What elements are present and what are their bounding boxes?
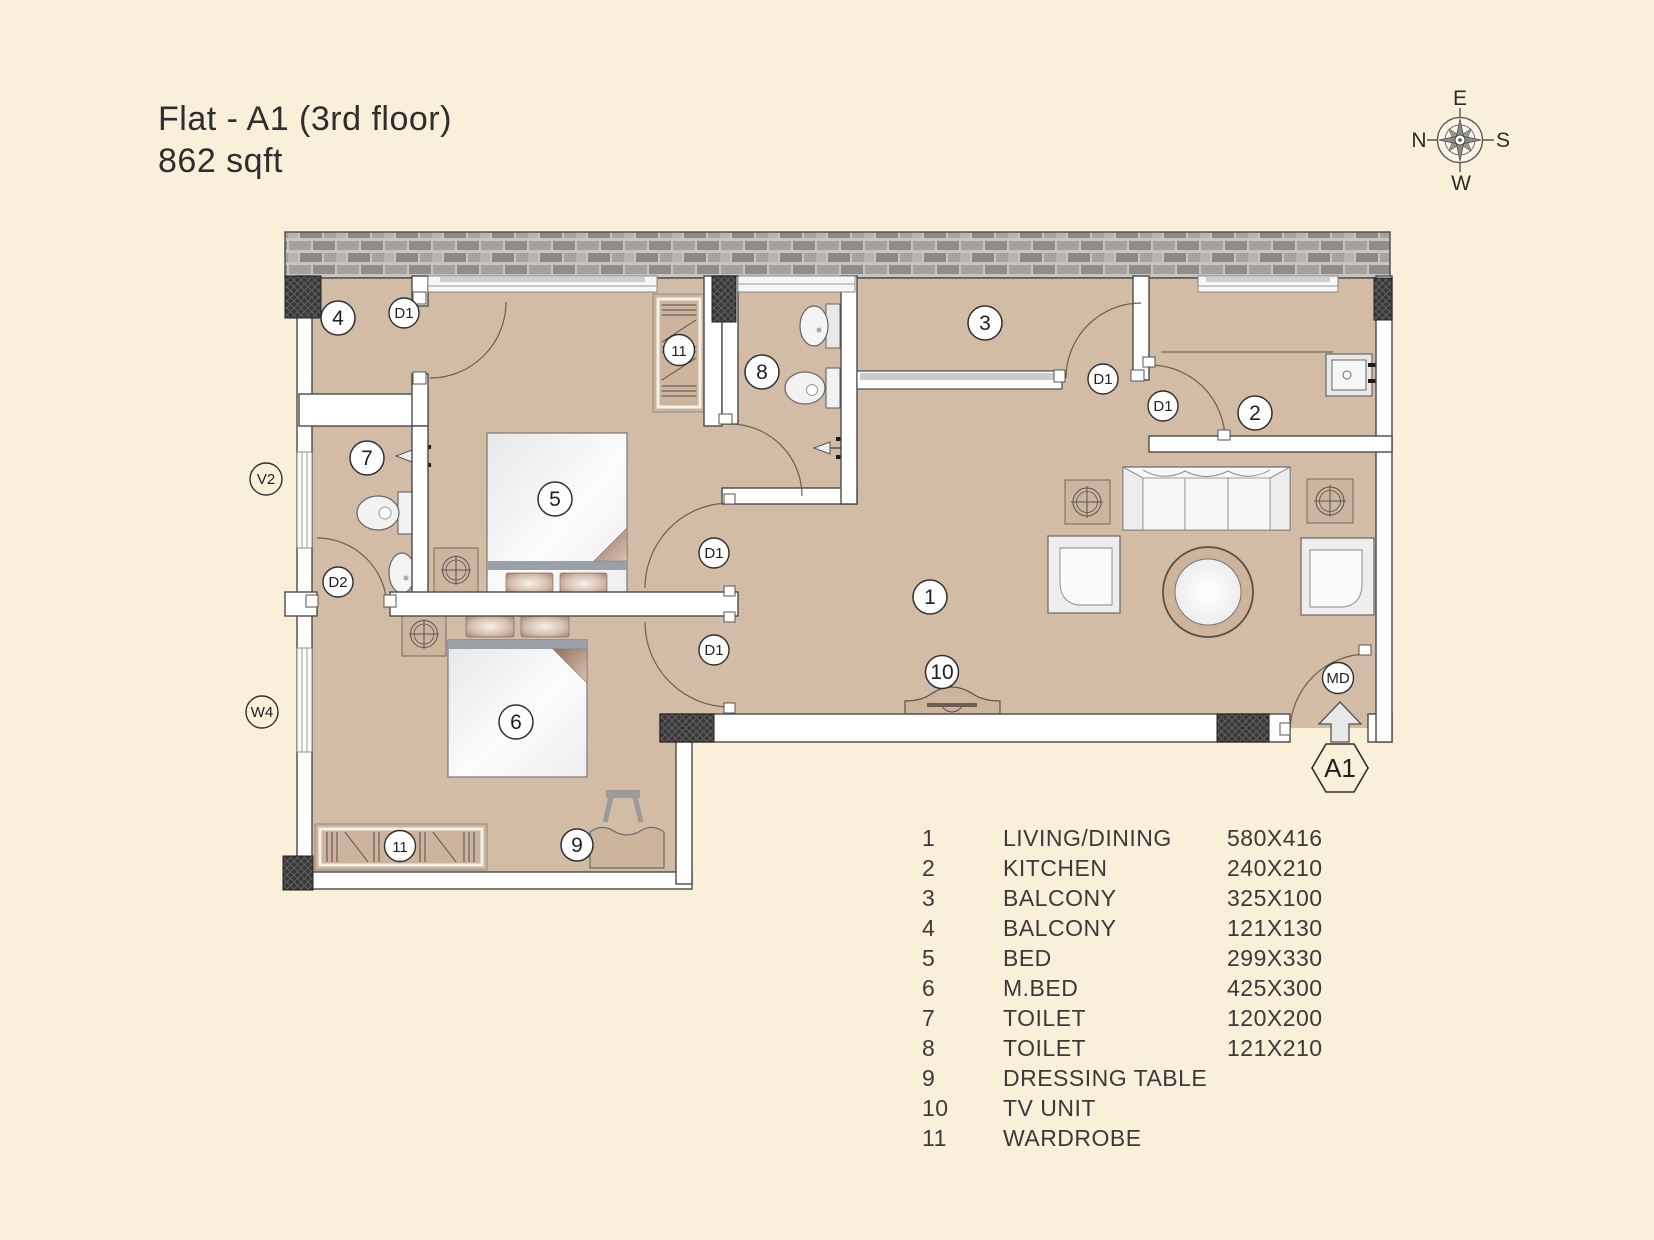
column bbox=[660, 714, 714, 742]
svg-text:V2: V2 bbox=[257, 471, 275, 488]
svg-text:TOILET: TOILET bbox=[1003, 1005, 1086, 1031]
legend-row: 3BALCONY325X100 bbox=[922, 885, 1323, 911]
room-label-wardrobe6: 11 bbox=[385, 831, 416, 862]
title-line1: Flat - A1 (3rd floor) bbox=[158, 100, 452, 138]
legend-row: 10TV UNIT bbox=[922, 1095, 1096, 1121]
svg-text:9: 9 bbox=[922, 1065, 935, 1091]
svg-text:8: 8 bbox=[922, 1035, 935, 1061]
window-w4 bbox=[297, 648, 312, 752]
svg-text:TV UNIT: TV UNIT bbox=[1003, 1095, 1096, 1121]
svg-text:WARDROBE: WARDROBE bbox=[1003, 1125, 1142, 1151]
legend-row: 8TOILET121X210 bbox=[922, 1035, 1323, 1061]
door-label-d1: D1 bbox=[1088, 364, 1118, 394]
door-label-d2: D2 bbox=[323, 567, 353, 597]
svg-text:D2: D2 bbox=[328, 574, 347, 591]
balcony4-toilet7-wall bbox=[299, 394, 426, 426]
room-label-mbed: 6 bbox=[499, 705, 533, 739]
room-label-wardrobe5: 11 bbox=[664, 335, 695, 366]
svg-text:3: 3 bbox=[922, 885, 935, 911]
svg-text:10: 10 bbox=[922, 1095, 949, 1121]
floorplan-canvas: Flat - A1 (3rd floor) 862 sqft E S W N bbox=[0, 0, 1654, 1240]
svg-text:299X330: 299X330 bbox=[1227, 945, 1323, 971]
unit-label: A1 bbox=[1324, 753, 1356, 783]
column bbox=[712, 276, 736, 322]
svg-text:1: 1 bbox=[922, 825, 935, 851]
svg-text:DRESSING TABLE: DRESSING TABLE bbox=[1003, 1065, 1207, 1091]
svg-text:D1: D1 bbox=[1153, 398, 1172, 415]
toilet8-east-wall bbox=[841, 276, 857, 504]
svg-text:BALCONY: BALCONY bbox=[1003, 915, 1116, 941]
room-label-balcony4: 4 bbox=[321, 301, 355, 335]
svg-text:8: 8 bbox=[756, 361, 768, 384]
bedside-table-plant-icon bbox=[434, 548, 478, 592]
mbed-east-wall bbox=[676, 726, 692, 884]
floorplan-page: Flat - A1 (3rd floor) 862 sqft E S W N bbox=[0, 0, 1654, 1240]
bed-mbed-divider-wall bbox=[390, 592, 738, 616]
svg-text:LIVING/DINING: LIVING/DINING bbox=[1003, 825, 1172, 851]
window-label-w4: W4 bbox=[246, 696, 278, 728]
svg-text:425X300: 425X300 bbox=[1227, 975, 1323, 1001]
left-exterior-wall bbox=[297, 276, 312, 884]
svg-text:580X416: 580X416 bbox=[1227, 825, 1323, 851]
window-v2 bbox=[297, 452, 312, 548]
window-bed5 bbox=[428, 276, 657, 292]
toilet7-east-wall bbox=[412, 426, 428, 608]
door-label-md: MD bbox=[1323, 663, 1354, 694]
svg-text:D1: D1 bbox=[704, 545, 723, 562]
svg-text:6: 6 bbox=[922, 975, 935, 1001]
compass-bottom-label: W bbox=[1451, 172, 1471, 195]
legend: 1LIVING/DINING580X416 2KITCHEN240X210 3B… bbox=[922, 825, 1323, 1151]
svg-text:W4: W4 bbox=[251, 704, 274, 721]
room-label-toilet7: 7 bbox=[350, 441, 384, 475]
compass-rose-icon: E S W N bbox=[1411, 87, 1510, 195]
washbasin-icon bbox=[389, 553, 415, 593]
sofa bbox=[1123, 467, 1290, 530]
svg-text:M.BED: M.BED bbox=[1003, 975, 1078, 1001]
column bbox=[283, 856, 313, 890]
side-table-plant-icon bbox=[1307, 479, 1353, 523]
svg-text:D1: D1 bbox=[1093, 371, 1112, 388]
svg-text:6: 6 bbox=[510, 711, 522, 734]
bottom-left-wall bbox=[285, 872, 692, 889]
svg-text:4: 4 bbox=[332, 307, 344, 330]
armchair bbox=[1048, 536, 1120, 613]
kitchen-bottom-wall bbox=[1149, 436, 1392, 452]
svg-text:2: 2 bbox=[922, 855, 935, 881]
room-label-balcony3: 3 bbox=[968, 306, 1002, 340]
svg-text:11: 11 bbox=[922, 1125, 947, 1151]
svg-text:121X130: 121X130 bbox=[1227, 915, 1323, 941]
title-line2: 862 sqft bbox=[158, 142, 283, 180]
room-label-bed: 5 bbox=[538, 482, 572, 516]
bed-6 bbox=[448, 616, 587, 777]
compass-top-label: E bbox=[1453, 87, 1467, 110]
svg-text:3: 3 bbox=[979, 312, 991, 335]
column bbox=[1374, 278, 1392, 320]
svg-text:D1: D1 bbox=[704, 642, 723, 659]
svg-text:BALCONY: BALCONY bbox=[1003, 885, 1116, 911]
svg-text:5: 5 bbox=[549, 488, 561, 511]
washbasin-icon bbox=[800, 304, 840, 348]
page-title: Flat - A1 (3rd floor) 862 sqft bbox=[158, 100, 452, 180]
svg-text:10: 10 bbox=[930, 661, 953, 684]
toilet8-bottom-wall bbox=[722, 488, 857, 504]
legend-row: 9DRESSING TABLE bbox=[922, 1065, 1207, 1091]
svg-text:MD: MD bbox=[1326, 670, 1349, 687]
compass-left-label: N bbox=[1411, 129, 1426, 152]
side-table-plant-icon bbox=[1065, 480, 1110, 524]
door-label-d1: D1 bbox=[389, 298, 419, 328]
legend-row: 6M.BED425X300 bbox=[922, 975, 1323, 1001]
right-exterior-wall bbox=[1376, 276, 1392, 742]
window-kitchen bbox=[1198, 276, 1338, 292]
column bbox=[285, 276, 321, 318]
svg-text:121X210: 121X210 bbox=[1227, 1035, 1323, 1061]
window-label-v2: V2 bbox=[250, 463, 282, 495]
room-label-living: 1 bbox=[913, 580, 947, 614]
room-label-tv: 10 bbox=[926, 656, 959, 689]
svg-text:325X100: 325X100 bbox=[1227, 885, 1323, 911]
svg-text:11: 11 bbox=[671, 343, 687, 360]
svg-text:KITCHEN: KITCHEN bbox=[1003, 855, 1107, 881]
svg-text:4: 4 bbox=[922, 915, 935, 941]
armchair bbox=[1301, 538, 1374, 615]
room-label-kitchen: 2 bbox=[1238, 396, 1272, 430]
compass-right-label: S bbox=[1496, 129, 1510, 152]
unit-badge: A1 bbox=[1312, 744, 1368, 792]
svg-text:7: 7 bbox=[922, 1005, 935, 1031]
bedside-table-plant-icon bbox=[402, 612, 446, 656]
svg-text:240X210: 240X210 bbox=[1227, 855, 1323, 881]
svg-text:7: 7 bbox=[361, 447, 373, 470]
svg-text:9: 9 bbox=[571, 834, 583, 857]
room-label-toilet8: 8 bbox=[745, 355, 779, 389]
legend-row: 5BED299X330 bbox=[922, 945, 1323, 971]
svg-text:11: 11 bbox=[392, 839, 408, 856]
living-bottom-wall bbox=[660, 714, 1290, 742]
svg-text:BED: BED bbox=[1003, 945, 1052, 971]
legend-row: 4BALCONY121X130 bbox=[922, 915, 1323, 941]
svg-text:D1: D1 bbox=[394, 305, 413, 322]
room-label-dressing: 9 bbox=[561, 829, 593, 861]
exterior-brick-wall bbox=[285, 232, 1390, 278]
legend-row: 11WARDROBE bbox=[922, 1125, 1142, 1151]
legend-row: 7TOILET120X200 bbox=[922, 1005, 1323, 1031]
coffee-table bbox=[1163, 547, 1253, 637]
door-label-d1: D1 bbox=[1148, 391, 1178, 421]
legend-row: 1LIVING/DINING580X416 bbox=[922, 825, 1323, 851]
svg-text:TOILET: TOILET bbox=[1003, 1035, 1086, 1061]
svg-text:2: 2 bbox=[1249, 402, 1261, 425]
column bbox=[1217, 714, 1269, 742]
door-label-d1: D1 bbox=[699, 538, 729, 568]
window-toilet8 bbox=[738, 276, 855, 292]
legend-row: 2KITCHEN240X210 bbox=[922, 855, 1323, 881]
door-label-d1: D1 bbox=[699, 635, 729, 665]
svg-text:120X200: 120X200 bbox=[1227, 1005, 1323, 1031]
svg-text:1: 1 bbox=[924, 586, 936, 609]
balcony3-railing bbox=[857, 371, 1062, 389]
svg-text:5: 5 bbox=[922, 945, 935, 971]
